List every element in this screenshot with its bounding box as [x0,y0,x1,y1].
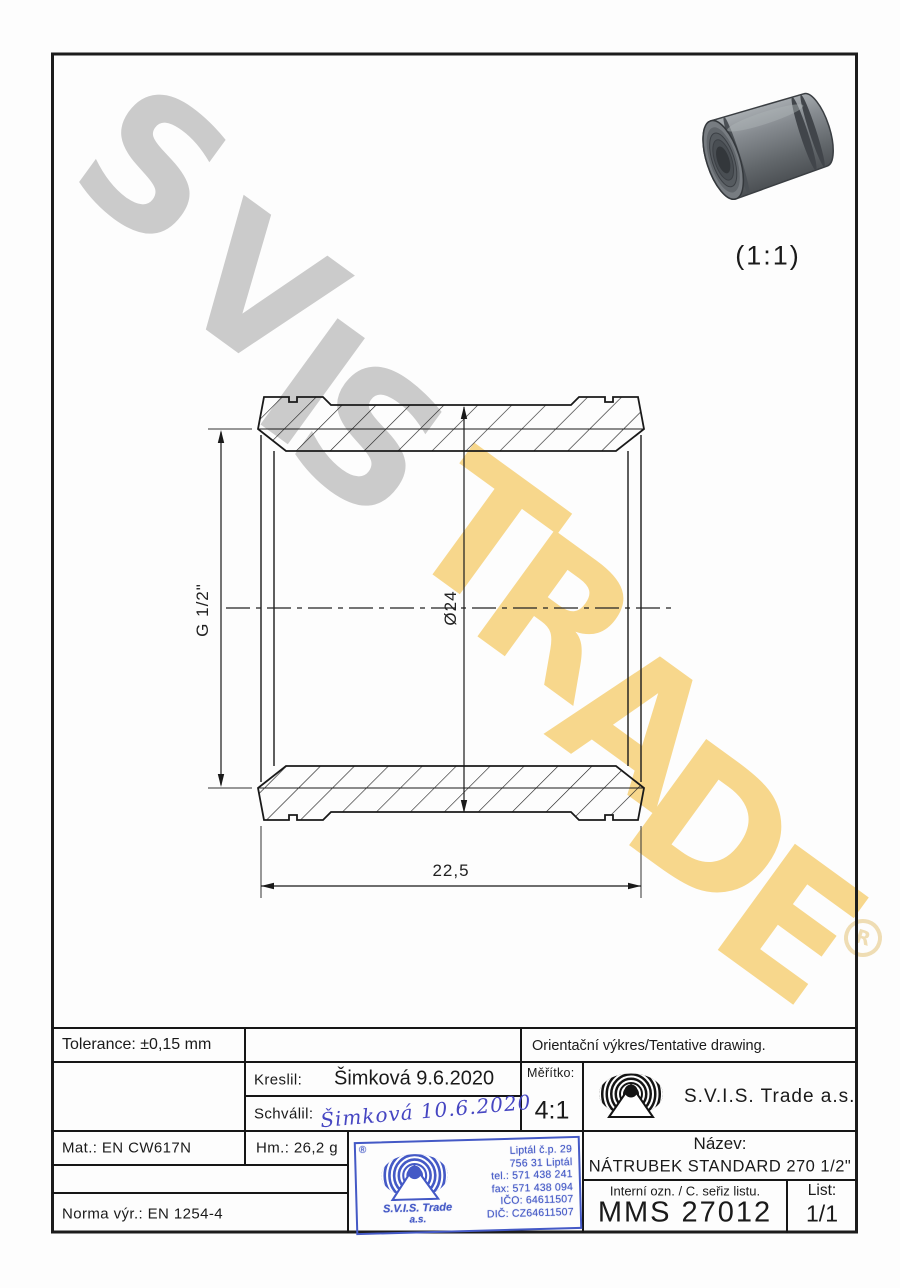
approved-by-label: Schválil: [254,1106,313,1123]
drawing-frame [53,54,857,1232]
registered-symbol: ® [359,1145,367,1156]
internal-code-value: MMS 27012 [598,1197,772,1230]
drawn-by-value: Šimková 9.6.2020 [334,1068,494,1091]
company-name: S.V.I.S. Trade a.s. [684,1086,855,1108]
dimension-diameter [461,406,467,813]
material-value: Mat.: EN CW617N [62,1140,191,1157]
sheet-value: 1/1 [806,1201,838,1228]
part-3d-render [695,87,842,204]
stamp-address-line: DIČ: CZ64611507 [487,1206,574,1221]
thread-dimension-label: G 1/2" [193,583,213,637]
stamp-logo-icon [370,1149,460,1206]
diameter-dimension-label: Ø24 [441,590,461,625]
orientation-note: Orientační výkres/Tentative drawing. [532,1038,766,1054]
drawn-by-label: Kreslil: [254,1072,302,1089]
company-stamp: ® S.V.I.S. Trade a.s. Liptál č.p. 29 756… [354,1136,583,1235]
tolerance-value: Tolerance: ±0,15 mm [62,1036,211,1054]
company-logo-icon [598,1070,664,1123]
part-name-label: Název: [694,1134,747,1154]
bottom-wall-hatched [258,766,644,820]
stamp-company-suffix: a.s. [370,1213,466,1227]
drawing-sheet: S V I S T R A D E R [0,0,900,1288]
length-dimension-label: 22,5 [432,861,469,881]
sheet-label: List: [808,1182,836,1200]
scale-label: Měřítko: [527,1066,575,1080]
render-scale-label: (1:1) [735,241,801,272]
standard-value: Norma výr.: EN 1254-4 [62,1206,223,1223]
top-wall-hatched [258,397,644,451]
weight-value: Hm.: 26,2 g [256,1140,338,1157]
scale-value: 4:1 [535,1097,570,1126]
part-name-value: NÁTRUBEK STANDARD 270 1/2" [589,1158,851,1177]
stamp-address: Liptál č.p. 29 756 31 Liptál tel.: 571 4… [485,1143,574,1221]
